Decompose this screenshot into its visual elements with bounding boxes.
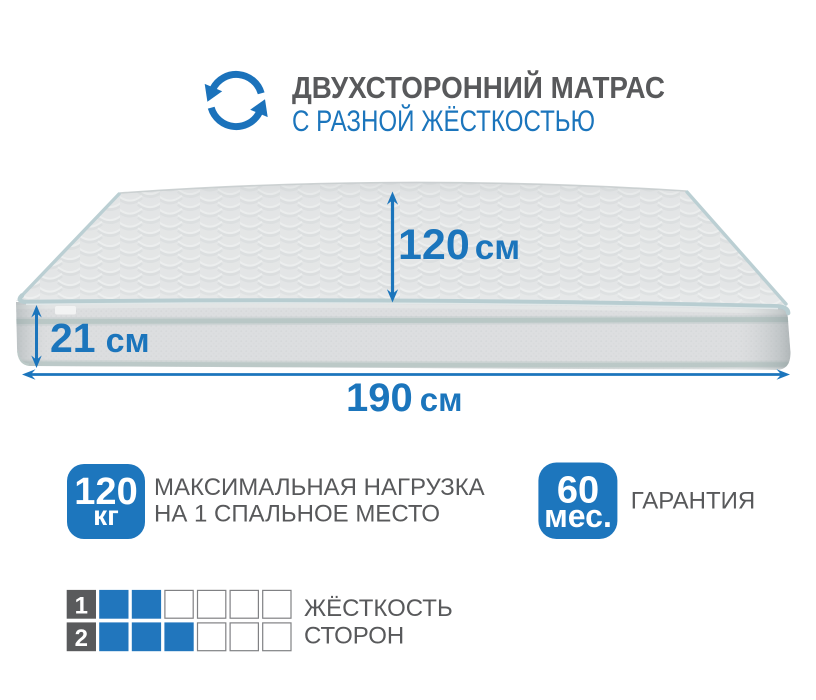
svg-text:ДВУХСТОРОННИЙ МАТРАС: ДВУХСТОРОННИЙ МАТРАС <box>292 69 665 105</box>
svg-text:кг: кг <box>93 500 119 531</box>
svg-text:190см: 190см <box>346 376 463 420</box>
svg-text:НА 1 СПАЛЬНОЕ МЕСТО: НА 1 СПАЛЬНОЕ МЕСТО <box>154 501 440 528</box>
svg-text:ЖЁСТКОСТЬ: ЖЁСТКОСТЬ <box>304 595 453 622</box>
svg-text:СТОРОН: СТОРОН <box>304 623 404 650</box>
svg-text:МАКСИМАЛЬНАЯ НАГРУЗКА: МАКСИМАЛЬНАЯ НАГРУЗКА <box>154 474 485 501</box>
svg-text:120см: 120см <box>398 221 520 269</box>
svg-text:1: 1 <box>75 593 88 620</box>
svg-text:С РАЗНОЙ ЖЁСТКОСТЬЮ: С РАЗНОЙ ЖЁСТКОСТЬЮ <box>292 104 595 138</box>
svg-text:ГАРАНТИЯ: ГАРАНТИЯ <box>631 487 755 514</box>
svg-text:мес.: мес. <box>544 498 612 534</box>
svg-text:2: 2 <box>75 625 88 652</box>
